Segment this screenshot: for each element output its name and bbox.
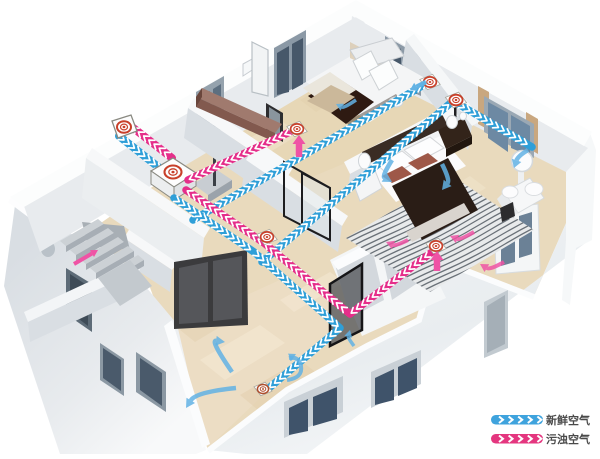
svg-text:新鲜空气: 新鲜空气 bbox=[546, 413, 590, 427]
svg-text:污浊空气: 污浊空气 bbox=[546, 432, 590, 446]
